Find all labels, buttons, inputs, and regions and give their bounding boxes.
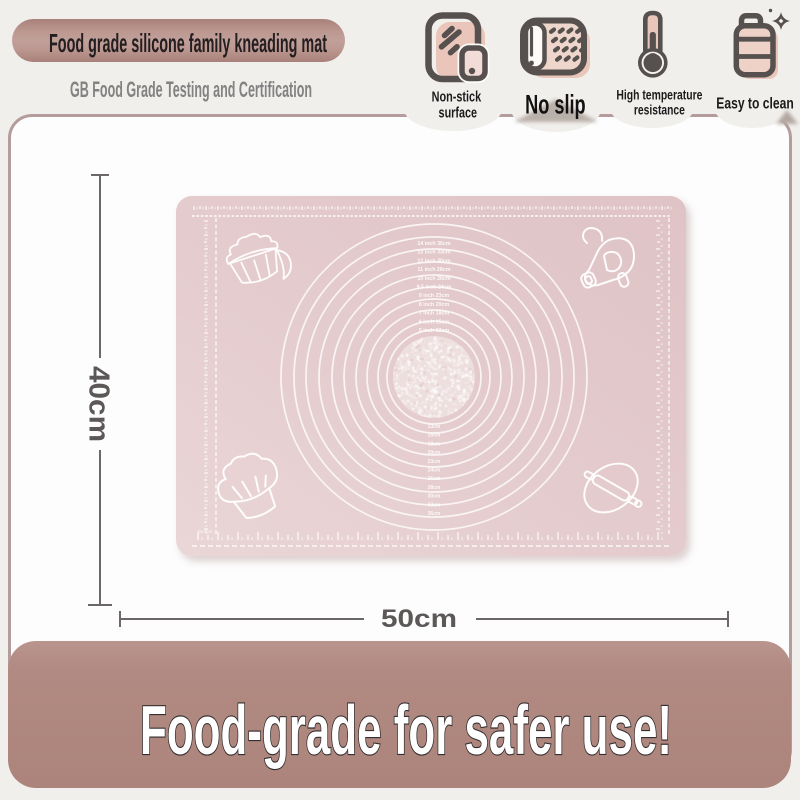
svg-text:12 inch 30cm: 12 inch 30cm xyxy=(417,258,451,264)
svg-text:36cm: 36cm xyxy=(428,511,441,517)
svg-text:resistance: resistance xyxy=(634,103,685,118)
svg-text:No slip: No slip xyxy=(525,90,586,120)
svg-text:GB Food Grade Testing and Cert: GB Food Grade Testing and Certification xyxy=(70,77,312,102)
svg-text:18cm: 18cm xyxy=(428,441,441,447)
svg-text:28cm: 28cm xyxy=(428,485,441,491)
svg-text:23cm: 23cm xyxy=(428,459,441,465)
svg-text:Easy to clean: Easy to clean xyxy=(716,96,794,113)
svg-text:26cm: 26cm xyxy=(428,476,441,482)
svg-text:6 inch 15cm: 6 inch 15cm xyxy=(419,319,450,325)
svg-text:10 inch 26cm: 10 inch 26cm xyxy=(417,276,451,282)
svg-text:50cm: 50cm xyxy=(381,605,457,633)
svg-text:15cm: 15cm xyxy=(428,433,441,439)
svg-text:9.5 inch 24cm: 9.5 inch 24cm xyxy=(417,285,452,291)
svg-text:High temperature: High temperature xyxy=(616,88,702,103)
svg-text:Food-grade for safer use!: Food-grade for safer use! xyxy=(140,691,672,769)
svg-text:Non-stick: Non-stick xyxy=(432,89,482,105)
svg-text:33cm: 33cm xyxy=(428,502,441,508)
svg-text:14 inch 36cm: 14 inch 36cm xyxy=(417,241,451,247)
svg-text:20cm: 20cm xyxy=(428,450,441,456)
svg-text:40cm: 40cm xyxy=(83,366,115,442)
svg-text:kitchen: kitchen xyxy=(198,529,213,534)
svg-text:8 inch 20cm: 8 inch 20cm xyxy=(419,302,450,308)
svg-text:5 inch 13cm: 5 inch 13cm xyxy=(419,328,450,334)
svg-text:13 inch 33cm: 13 inch 33cm xyxy=(417,250,451,256)
svg-text:24cm: 24cm xyxy=(428,468,441,474)
svg-text:surface: surface xyxy=(439,105,478,121)
svg-text:9 inch 23cm: 9 inch 23cm xyxy=(419,293,450,299)
svg-text:30cm: 30cm xyxy=(428,494,441,500)
svg-text:11 inch 28cm: 11 inch 28cm xyxy=(418,267,451,273)
svg-text:7 inch 18cm: 7 inch 18cm xyxy=(419,311,450,317)
svg-text:Food grade silicone family kne: Food grade silicone family kneading mat xyxy=(49,28,327,58)
svg-text:13cm: 13cm xyxy=(428,424,441,430)
